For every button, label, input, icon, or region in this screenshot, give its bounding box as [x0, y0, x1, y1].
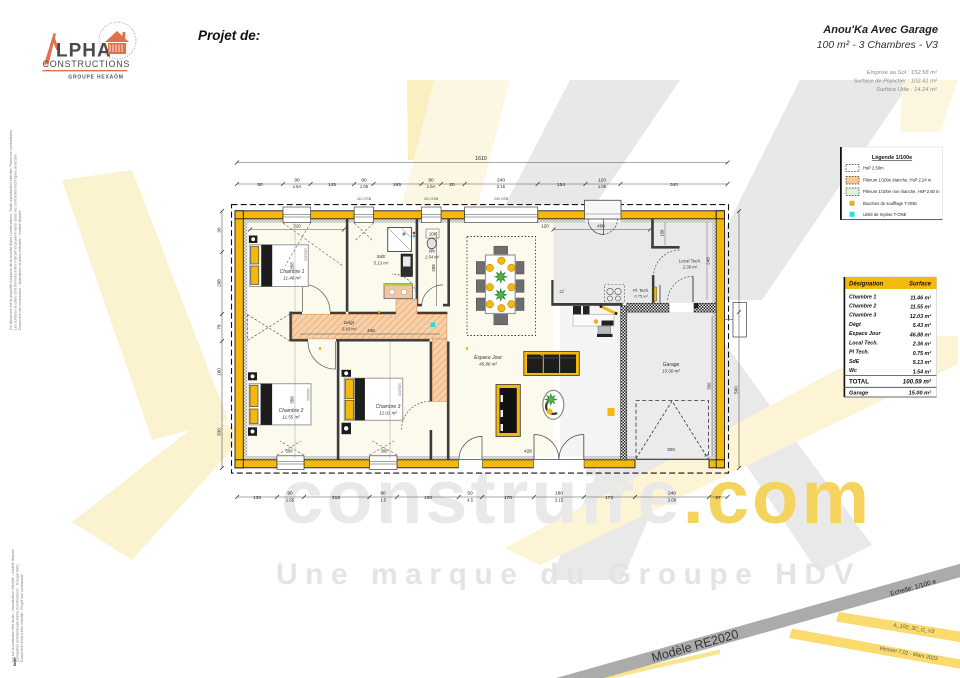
svg-text:90: 90: [428, 178, 434, 184]
svg-text:Ce document est la propriété e: Ce document est la propriété exclusive d…: [9, 129, 13, 330]
svg-text:358: 358: [290, 262, 295, 270]
svg-text:300: 300: [286, 449, 294, 454]
svg-text:15.00 m²: 15.00 m²: [909, 390, 932, 397]
svg-text:2.15: 2.15: [555, 498, 564, 503]
svg-text:145: 145: [328, 182, 336, 188]
svg-text:110 OSB: 110 OSB: [424, 197, 439, 201]
svg-text:215: 215: [332, 495, 340, 501]
svg-text:46.88 m²: 46.88 m²: [909, 332, 931, 338]
svg-text:1.55: 1.55: [286, 498, 295, 503]
svg-text:158: 158: [660, 229, 665, 237]
svg-text:240 OSB: 240 OSB: [494, 197, 509, 201]
svg-text:Garage: Garage: [849, 391, 868, 397]
svg-text:100 m² - 3 Chambres - V3: 100 m² - 3 Chambres - V3: [817, 39, 939, 51]
svg-text:120: 120: [598, 178, 606, 184]
svg-text:240: 240: [668, 491, 676, 497]
svg-text:170: 170: [504, 495, 512, 501]
svg-text:100.59 m²: 100.59 m²: [903, 379, 932, 386]
svg-text:0.75 m²: 0.75 m²: [634, 294, 648, 299]
svg-text:Local Tech.: Local Tech.: [679, 259, 701, 264]
svg-text:358: 358: [290, 396, 295, 404]
svg-text:Emprise au Sol : 152.58 m²: Emprise au Sol : 152.58 m²: [867, 70, 938, 76]
svg-text:12.03 m²: 12.03 m²: [379, 411, 397, 416]
svg-text:78: 78: [217, 324, 222, 330]
svg-text:Dégt: Dégt: [344, 320, 355, 326]
svg-text:5.43 m²: 5.43 m²: [913, 323, 931, 329]
svg-text:5.13 m²: 5.13 m²: [913, 360, 931, 366]
svg-text:Document remis à titre indicat: Document remis à titre indicatif - Proje…: [20, 574, 24, 662]
svg-text:2.00: 2.00: [668, 498, 677, 503]
svg-text:340: 340: [670, 182, 678, 188]
svg-text:180: 180: [555, 491, 563, 497]
svg-text:180: 180: [424, 495, 432, 501]
svg-text:Une marque du Groupe HDV: Une marque du Groupe HDV: [276, 558, 861, 591]
svg-text:90: 90: [361, 178, 367, 184]
svg-text:SdE: SdE: [376, 254, 386, 260]
svg-text:Projet de:: Projet de:: [198, 28, 260, 43]
svg-text:11.55 m²: 11.55 m²: [910, 305, 931, 311]
svg-text:5.13 m²: 5.13 m²: [374, 261, 389, 266]
svg-text:SdE: SdE: [849, 359, 860, 365]
svg-text:160x200: 160x200: [398, 383, 402, 396]
svg-text:310: 310: [293, 224, 301, 229]
svg-text:Chambre 2: Chambre 2: [279, 408, 304, 414]
svg-text:100: 100: [429, 232, 437, 237]
svg-text:90: 90: [287, 491, 293, 497]
svg-text:160: 160: [217, 368, 222, 376]
svg-text:173: 173: [605, 495, 613, 501]
svg-text:TOTAL: TOTAL: [849, 379, 869, 386]
svg-text:1.05: 1.05: [598, 184, 607, 189]
svg-text:Wc: Wc: [429, 249, 436, 254]
svg-text:1.5: 1.5: [380, 498, 386, 503]
svg-text:57: 57: [715, 495, 721, 501]
svg-text:330: 330: [217, 428, 222, 436]
svg-text:Chambre 3: Chambre 3: [849, 313, 876, 319]
svg-text:Espace Jour: Espace Jour: [474, 355, 502, 361]
svg-text:11.46 m²: 11.46 m²: [283, 276, 301, 281]
svg-text:2.36 m²: 2.36 m²: [912, 342, 931, 348]
svg-text:1.5A: 1.5A: [293, 184, 302, 189]
svg-text:Loi sur la protection des droi: Loi sur la protection des droits - repro…: [11, 549, 15, 662]
svg-text:500: 500: [707, 382, 712, 390]
svg-text:11.55 m²: 11.55 m²: [282, 415, 300, 420]
svg-text:500: 500: [734, 386, 739, 394]
svg-text:1.05: 1.05: [360, 184, 369, 189]
svg-text:135: 135: [253, 495, 261, 501]
svg-text:258: 258: [431, 264, 436, 272]
svg-text:Surface de Plancher : 102.41 m: Surface de Plancher : 102.41 m²: [854, 79, 939, 85]
svg-text:1610: 1610: [475, 156, 487, 162]
svg-text:Garage: Garage: [663, 362, 680, 368]
svg-text:50: 50: [257, 182, 263, 188]
svg-text:Dégt: Dégt: [849, 322, 861, 328]
svg-text:248: 248: [706, 257, 711, 265]
svg-text:160x200: 160x200: [304, 248, 308, 261]
svg-text:154: 154: [557, 182, 565, 188]
svg-text:Chambre 2: Chambre 2: [849, 304, 876, 310]
svg-text:300: 300: [667, 447, 675, 453]
svg-text:90: 90: [294, 178, 300, 184]
svg-text:90: 90: [380, 491, 386, 497]
svg-text:Surface Utile : 14.24 m²: Surface Utile : 14.24 m²: [876, 87, 938, 93]
svg-text:Cl.: Cl.: [559, 289, 564, 294]
svg-text:298: 298: [217, 279, 222, 287]
svg-text:Wc: Wc: [849, 368, 857, 374]
svg-text:Document non contractuel - ill: Document non contractuel - illustrations…: [18, 210, 22, 330]
svg-text:120: 120: [541, 224, 549, 229]
svg-text:15.00 m²: 15.00 m²: [662, 369, 680, 374]
svg-text:Bouches de soufflage T-ONE: Bouches de soufflage T-ONE: [863, 201, 917, 206]
svg-text:Plénum 1/100e étanche, HsP 2.2: Plénum 1/100e étanche, HsP 2.24 m: [863, 178, 932, 183]
svg-text:12.03 m²: 12.03 m²: [910, 314, 931, 320]
svg-text:Conception architecturale Alph: Conception architecturale Alpha Construc…: [16, 564, 20, 662]
svg-text:160x200: 160x200: [306, 388, 310, 401]
svg-text:Unité de reprise T-ONE: Unité de reprise T-ONE: [863, 212, 907, 217]
svg-text:4.5: 4.5: [467, 498, 473, 503]
svg-text:110 OSB: 110 OSB: [357, 197, 372, 201]
svg-text:1.54 m²: 1.54 m²: [425, 255, 440, 260]
svg-text:Chambre 1: Chambre 1: [849, 294, 876, 300]
svg-text:300: 300: [381, 449, 389, 454]
svg-text:0.75 m²: 0.75 m²: [913, 351, 931, 357]
svg-text:Espace Jour: Espace Jour: [849, 331, 881, 337]
svg-text:Les surfaces et cotes sont don: Les surfaces et cotes sont données à tit…: [14, 153, 18, 330]
svg-text:Désignation: Désignation: [849, 282, 884, 288]
svg-text:165: 165: [393, 182, 401, 188]
svg-text:46.88 m²: 46.88 m²: [479, 362, 497, 367]
svg-text:1.54 m²: 1.54 m²: [913, 369, 931, 375]
svg-text:Surface: Surface: [909, 282, 932, 288]
svg-text:2.15: 2.15: [497, 184, 506, 189]
svg-text:5.43 m²: 5.43 m²: [342, 327, 357, 332]
svg-text:240: 240: [497, 178, 505, 184]
svg-text:Note:: Note:: [13, 657, 17, 666]
svg-text:54: 54: [704, 454, 708, 458]
svg-text:Anou'Ka Avec Garage: Anou'Ka Avec Garage: [822, 24, 938, 36]
svg-text:Pl. Tech.: Pl. Tech.: [633, 288, 649, 293]
svg-text:CONSTRUCTIONS: CONSTRUCTIONS: [43, 59, 131, 69]
svg-text:2.36 m²: 2.36 m²: [682, 265, 698, 270]
svg-text:50: 50: [467, 491, 473, 497]
svg-text:428: 428: [524, 449, 532, 454]
svg-text:Plénum 1/100e non étanche, HsP: Plénum 1/100e non étanche, HsP 2.50 m: [863, 189, 940, 194]
svg-text:Chambre 3: Chambre 3: [376, 404, 401, 410]
svg-text:Légende 1/100e: Légende 1/100e: [872, 155, 912, 161]
svg-text:Pl Tech.: Pl Tech.: [849, 350, 870, 356]
svg-text:30: 30: [217, 227, 222, 233]
svg-text:HsP 2.50m: HsP 2.50m: [863, 166, 884, 171]
svg-text:1.0A: 1.0A: [427, 184, 436, 189]
svg-text:20: 20: [449, 182, 455, 188]
svg-text:GROUPE HEXAÔM: GROUPE HEXAÔM: [68, 73, 123, 81]
svg-text:400: 400: [597, 224, 605, 229]
svg-text:11.46 m²: 11.46 m²: [910, 296, 931, 302]
svg-text:446: 446: [367, 328, 375, 333]
svg-text:Local Tech.: Local Tech.: [849, 340, 878, 346]
